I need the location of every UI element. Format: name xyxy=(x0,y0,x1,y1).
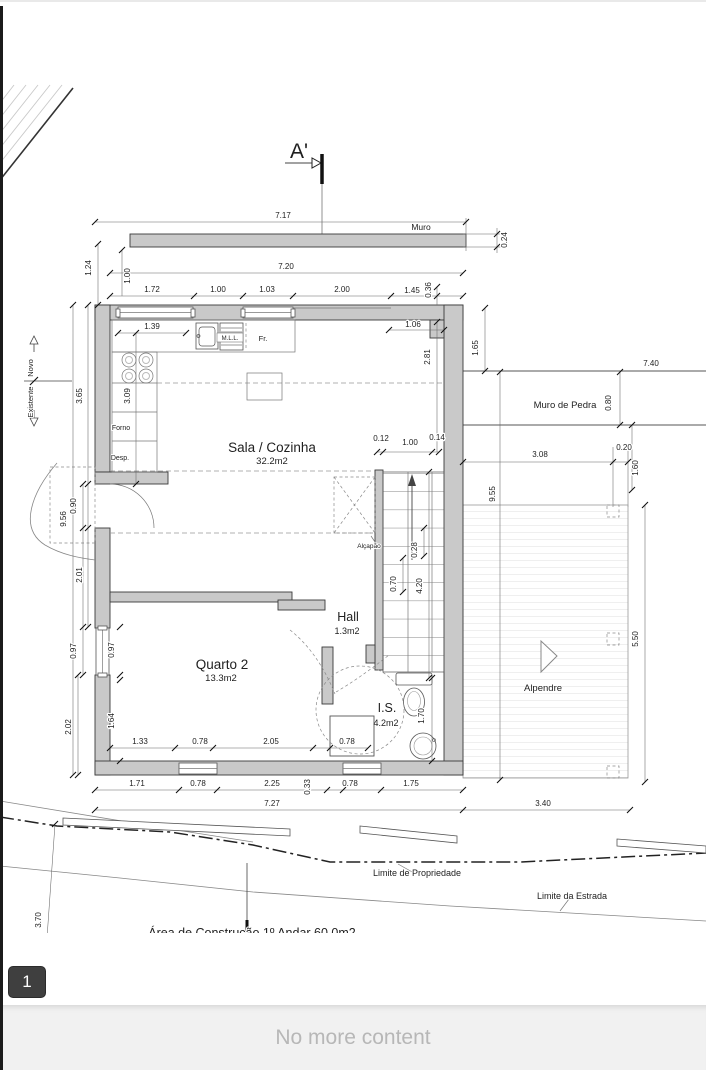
annotation-label: Alçapão xyxy=(357,543,381,550)
window-top-mid xyxy=(241,307,295,318)
floor-plan-drawing: A' xyxy=(0,0,706,1005)
alcapao-hatch xyxy=(334,477,377,545)
document-viewer: A' xyxy=(0,0,706,1070)
dimension-label: 0.14 xyxy=(429,433,445,442)
annotation-label: Novo xyxy=(26,359,35,377)
drawing-page[interactable]: A' xyxy=(0,0,706,1005)
room-label-sala: Sala / Cozinha xyxy=(228,440,316,455)
annotation-label: Forno xyxy=(112,425,130,432)
window-top-left xyxy=(116,307,195,318)
page-number-badge: 1 xyxy=(8,966,46,998)
dimension-label: 1.00 xyxy=(402,438,418,447)
entry-door-arc xyxy=(110,484,154,528)
dimension-label: 0.78 xyxy=(192,737,208,746)
dimension-label: 1.06 xyxy=(405,320,421,329)
room-area-is: 4.2m2 xyxy=(373,718,398,728)
room-label-hall: Hall xyxy=(337,610,359,624)
annotation-label: Desp. xyxy=(111,455,129,462)
sink-icon xyxy=(196,323,218,349)
dimension-label: 1.39 xyxy=(144,322,160,331)
dimension-label: 1.03 xyxy=(259,285,275,294)
room-label-alpendre: Alpendre xyxy=(524,683,562,694)
dimension-label: 5.50 xyxy=(631,631,640,647)
dimension-label: 0.78 xyxy=(190,779,206,788)
alpendre-deck xyxy=(463,505,628,778)
dimension-label: 1.71 xyxy=(129,779,145,788)
dimension-label: 4.20 xyxy=(415,578,424,594)
dimension-label: 0.28 xyxy=(410,542,419,558)
dimension-label: 7.40 xyxy=(643,359,659,368)
dimension-label: 1.65 xyxy=(471,340,480,356)
dimension-label: 2.02 xyxy=(64,719,73,735)
dimension-label: 1.00 xyxy=(123,268,132,284)
annotation-label: Limite de Propriedade xyxy=(373,868,461,878)
page-top-edge xyxy=(0,0,706,2)
dimension-label: 1.70 xyxy=(417,708,426,724)
dimension-label: 3.40 xyxy=(535,799,551,808)
dimension-label: 3.65 xyxy=(75,388,84,404)
windows xyxy=(96,307,391,774)
dimension-label: 1.60 xyxy=(631,460,640,476)
dimension-label: 0.78 xyxy=(342,779,358,788)
room-area-quarto2: 13.3m2 xyxy=(205,673,237,684)
counter-return xyxy=(247,373,282,400)
section-label: A' xyxy=(290,140,308,163)
annotation-label: Muro xyxy=(411,222,431,232)
dimension-label: 1.00 xyxy=(210,285,226,294)
room-label-quarto2: Quarto 2 xyxy=(196,657,249,672)
dimension-label: 9.55 xyxy=(488,486,497,502)
dimension-label: 1.33 xyxy=(132,737,148,746)
dimension-label: 2.01 xyxy=(75,567,84,583)
dimension-label: 3.09 xyxy=(123,388,132,404)
no-more-content-label: No more content xyxy=(275,1026,430,1050)
room-area-sala: 32.2m2 xyxy=(256,456,288,467)
dimension-label: 2.05 xyxy=(263,737,279,746)
dimension-label: 9.56 xyxy=(59,511,68,527)
annotation-label: Limite da Estrada xyxy=(537,891,607,901)
dimension-label: 7.17 xyxy=(275,211,291,220)
terrain-hatch xyxy=(0,85,73,180)
shower-tray xyxy=(330,716,374,756)
dimension-label: 7.20 xyxy=(278,262,294,271)
dimension-label: 0.70 xyxy=(389,576,398,592)
dimension-label: 0.36 xyxy=(424,282,433,298)
room-area-hall: 1.3m2 xyxy=(334,626,359,636)
page-left-edge xyxy=(0,6,3,1070)
dimension-label: 0.24 xyxy=(500,232,509,248)
dimension-label: 1.75 xyxy=(403,779,419,788)
stove-icon xyxy=(122,353,153,383)
annotation-label: Fr. xyxy=(259,334,268,343)
window-bottom-right xyxy=(343,763,381,774)
dimension-label: 0.78 xyxy=(339,737,355,746)
viewer-footer: No more content xyxy=(0,1005,706,1070)
dimension-label: 1.64 xyxy=(107,713,116,729)
dimension-label: 0.97 xyxy=(107,642,116,658)
window-bottom-left xyxy=(179,763,217,774)
dimension-label: 7.27 xyxy=(264,799,280,808)
annotation-label: Existente xyxy=(26,387,35,418)
dimension-label: 2.81 xyxy=(423,349,432,365)
page-bottom-mask xyxy=(0,933,706,1005)
dimension-label: 0.90 xyxy=(69,498,78,514)
dimension-label: 3.08 xyxy=(532,450,548,459)
dimension-label: 0.20 xyxy=(616,443,632,452)
dimension-label: 1.72 xyxy=(144,285,160,294)
dimension-label: 0.33 xyxy=(303,779,312,795)
site-walls xyxy=(130,234,706,507)
section-marker: A' xyxy=(285,140,322,240)
dimension-label: 3.70 xyxy=(34,912,43,928)
dimension-label: 2.25 xyxy=(264,779,280,788)
dimension-label: 0.12 xyxy=(373,434,389,443)
dimension-label: 2.00 xyxy=(334,285,350,294)
dimension-label: 0.80 xyxy=(604,395,613,411)
stairs xyxy=(383,472,444,672)
annotation-label: M.L.L. xyxy=(222,336,239,342)
dimension-label: 1.45 xyxy=(404,286,420,295)
annotation-label: Muro de Pedra xyxy=(534,400,598,411)
dimension-label: 1.24 xyxy=(84,260,93,276)
room-label-is: I.S. xyxy=(378,701,397,715)
dimension-label: 0.97 xyxy=(69,643,78,659)
